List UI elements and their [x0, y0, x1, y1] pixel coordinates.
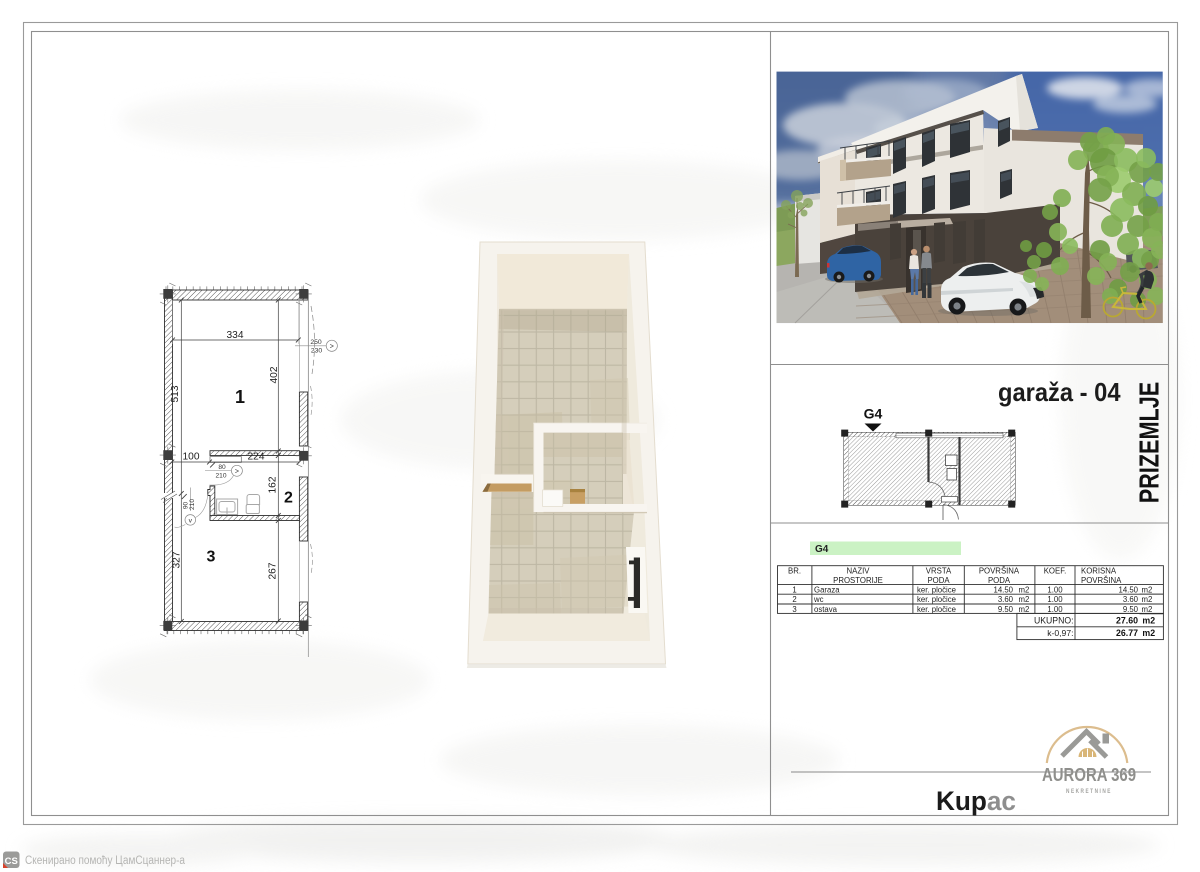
- svg-text:27.60: 27.60: [1116, 615, 1138, 625]
- svg-text:1: 1: [235, 387, 245, 407]
- svg-text:Garaza: Garaza: [814, 585, 840, 594]
- svg-text:210: 210: [189, 499, 196, 510]
- svg-text:NAZIV: NAZIV: [847, 566, 871, 575]
- svg-text:m2: m2: [1019, 605, 1030, 614]
- svg-text:Скенирано помоћу ЦамСцаннер-а: Скенирано помоћу ЦамСцаннер-а: [25, 855, 186, 867]
- svg-text:Kupac: Kupac: [936, 786, 1016, 816]
- svg-text:ker. pločice: ker. pločice: [917, 585, 956, 594]
- svg-text:2: 2: [792, 595, 796, 604]
- svg-text:334: 334: [227, 330, 244, 341]
- svg-text:AURORA 369: AURORA 369: [1042, 765, 1136, 785]
- svg-text:m2: m2: [1142, 615, 1155, 625]
- svg-text:1.00: 1.00: [1047, 595, 1063, 604]
- svg-text:230: 230: [311, 348, 323, 355]
- svg-text:26.77: 26.77: [1116, 628, 1138, 638]
- svg-text:3: 3: [792, 605, 796, 614]
- svg-text:PODA: PODA: [988, 576, 1011, 585]
- svg-text:KORISNA: KORISNA: [1081, 566, 1117, 575]
- svg-text:9.50: 9.50: [1123, 605, 1139, 614]
- svg-text:m2: m2: [1019, 595, 1030, 604]
- svg-text:PODA: PODA: [927, 576, 950, 585]
- svg-text:m2: m2: [1142, 585, 1153, 594]
- svg-text:wc: wc: [813, 595, 824, 604]
- svg-text:80: 80: [218, 464, 226, 471]
- svg-text:1.00: 1.00: [1047, 585, 1063, 594]
- svg-text:NEKRETNINE: NEKRETNINE: [1066, 788, 1112, 795]
- svg-text:POVRŠINA: POVRŠINA: [979, 566, 1020, 575]
- svg-text:2: 2: [284, 490, 293, 507]
- svg-text:UKUPNO:: UKUPNO:: [1034, 616, 1074, 626]
- svg-text:KOEF.: KOEF.: [1044, 566, 1067, 575]
- svg-text:POVRŠINA: POVRŠINA: [1081, 576, 1122, 585]
- svg-text:G4: G4: [864, 406, 883, 422]
- svg-text:BR.: BR.: [788, 566, 801, 575]
- svg-text:ker. pločice: ker. pločice: [917, 595, 956, 604]
- svg-text:14.50: 14.50: [993, 585, 1013, 594]
- svg-text:CS: CS: [5, 856, 18, 867]
- svg-text:3: 3: [207, 549, 216, 566]
- svg-text:ostava: ostava: [814, 605, 838, 614]
- svg-text:250: 250: [310, 339, 322, 346]
- svg-text:267: 267: [268, 562, 279, 579]
- svg-text:3.60: 3.60: [998, 595, 1014, 604]
- svg-text:9.50: 9.50: [998, 605, 1014, 614]
- svg-text:224: 224: [248, 452, 265, 463]
- svg-text:327: 327: [171, 551, 182, 568]
- svg-text:garaža - 04: garaža - 04: [998, 377, 1121, 407]
- svg-text:>: >: [235, 468, 239, 475]
- svg-text:PRIZEMLJE: PRIZEMLJE: [1134, 382, 1165, 504]
- svg-text:513: 513: [170, 385, 181, 402]
- svg-text:ker. pločice: ker. pločice: [917, 605, 956, 614]
- svg-text:14.50: 14.50: [1118, 585, 1138, 594]
- svg-text:VRSTA: VRSTA: [926, 566, 952, 575]
- svg-text:>: >: [330, 343, 334, 350]
- svg-text:k-0,97:: k-0,97:: [1047, 628, 1073, 638]
- svg-text:402: 402: [269, 366, 280, 383]
- svg-text:G4: G4: [815, 544, 829, 555]
- svg-text:100: 100: [183, 452, 200, 463]
- svg-text:3.60: 3.60: [1123, 595, 1139, 604]
- svg-text:m2: m2: [1142, 595, 1153, 604]
- svg-text:v: v: [189, 517, 193, 524]
- svg-text:m2: m2: [1019, 585, 1030, 594]
- svg-text:m2: m2: [1142, 605, 1153, 614]
- svg-text:1.00: 1.00: [1047, 605, 1063, 614]
- svg-text:162: 162: [267, 476, 278, 493]
- svg-text:210: 210: [215, 472, 226, 479]
- svg-text:1: 1: [792, 585, 796, 594]
- svg-text:m2: m2: [1142, 628, 1155, 638]
- svg-text:PROSTORIJE: PROSTORIJE: [833, 576, 883, 585]
